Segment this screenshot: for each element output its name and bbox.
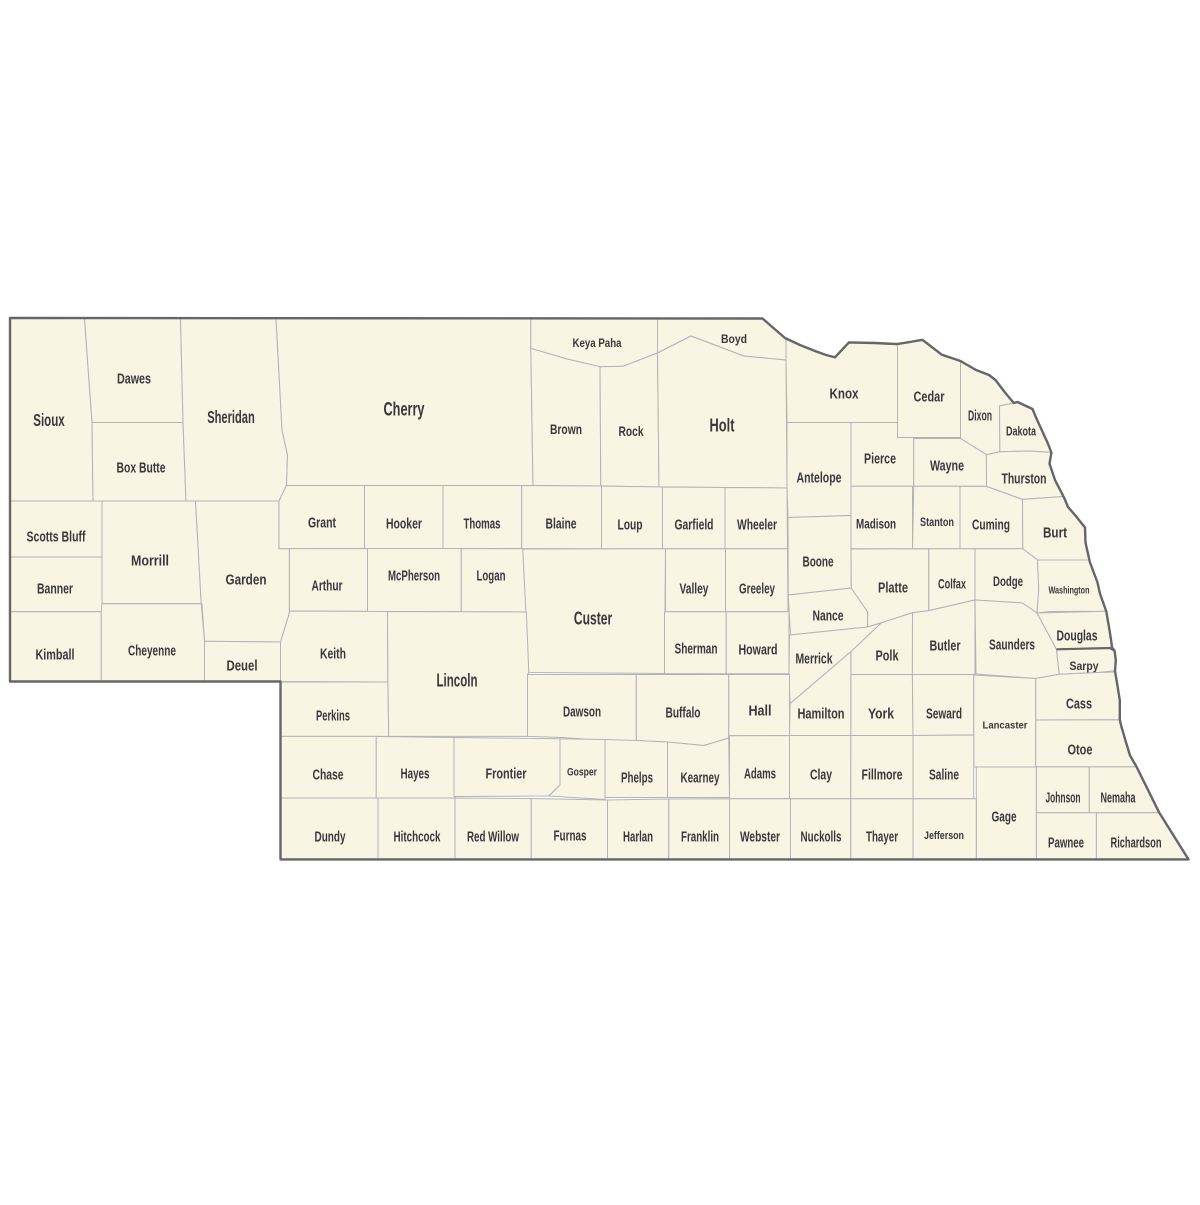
svg-text:Lancaster: Lancaster — [983, 720, 1028, 732]
svg-text:Polk: Polk — [876, 647, 899, 664]
svg-text:Arthur: Arthur — [312, 577, 343, 594]
svg-text:Buffalo: Buffalo — [666, 704, 701, 721]
svg-text:Saunders: Saunders — [989, 636, 1035, 653]
svg-text:Holt: Holt — [710, 415, 735, 435]
svg-text:Blaine: Blaine — [546, 515, 577, 532]
svg-text:Merrick: Merrick — [796, 650, 833, 667]
svg-text:Greeley: Greeley — [739, 580, 775, 597]
svg-text:Hamilton: Hamilton — [798, 705, 845, 722]
svg-text:Wayne: Wayne — [930, 457, 964, 474]
svg-text:Hooker: Hooker — [386, 515, 422, 532]
svg-text:Antelope: Antelope — [797, 469, 842, 486]
svg-text:Dodge: Dodge — [993, 573, 1023, 589]
svg-text:Howard: Howard — [739, 641, 778, 658]
svg-text:Butler: Butler — [930, 637, 961, 654]
svg-text:Perkins: Perkins — [316, 707, 350, 724]
svg-text:Frontier: Frontier — [486, 765, 527, 782]
svg-text:Kimball: Kimball — [36, 646, 75, 663]
svg-text:Seward: Seward — [926, 705, 962, 722]
svg-text:Sheridan: Sheridan — [207, 407, 255, 427]
svg-text:Pawnee: Pawnee — [1048, 834, 1084, 851]
svg-text:Logan: Logan — [477, 567, 506, 584]
svg-text:Douglas: Douglas — [1057, 627, 1098, 644]
svg-text:Rock: Rock — [619, 423, 644, 439]
svg-text:Saline: Saline — [929, 766, 959, 783]
svg-text:Otoe: Otoe — [1068, 741, 1093, 758]
svg-text:Gage: Gage — [992, 808, 1017, 825]
svg-text:Hall: Hall — [749, 702, 772, 719]
svg-text:Clay: Clay — [810, 766, 832, 783]
svg-text:Fillmore: Fillmore — [862, 766, 903, 783]
svg-text:Deuel: Deuel — [227, 657, 258, 674]
svg-text:Webster: Webster — [740, 828, 780, 845]
svg-text:Nuckolls: Nuckolls — [801, 828, 842, 845]
svg-text:Brown: Brown — [550, 421, 582, 437]
svg-text:Platte: Platte — [878, 579, 908, 596]
svg-text:Custer: Custer — [574, 608, 612, 628]
svg-text:Furnas: Furnas — [554, 827, 587, 844]
svg-text:Cuming: Cuming — [972, 516, 1010, 533]
svg-text:Nemaha: Nemaha — [1101, 789, 1136, 806]
svg-text:Phelps: Phelps — [621, 769, 653, 786]
svg-text:McPherson: McPherson — [388, 567, 440, 584]
svg-text:Keya Paha: Keya Paha — [573, 336, 622, 350]
svg-text:Red Willow: Red Willow — [467, 828, 519, 845]
svg-text:Cherry: Cherry — [384, 400, 425, 421]
svg-text:Johnson: Johnson — [1046, 789, 1081, 806]
svg-text:Nance: Nance — [813, 607, 844, 624]
svg-text:Pierce: Pierce — [864, 450, 896, 467]
svg-text:Richardson: Richardson — [1111, 834, 1162, 851]
svg-text:Chase: Chase — [313, 766, 344, 783]
svg-text:Dakota: Dakota — [1006, 424, 1036, 439]
svg-text:Cheyenne: Cheyenne — [128, 642, 176, 659]
svg-text:York: York — [868, 705, 894, 722]
svg-text:Banner: Banner — [37, 580, 73, 597]
svg-text:Morrill: Morrill — [131, 552, 169, 569]
svg-text:Dixon: Dixon — [968, 407, 992, 424]
svg-text:Franklin: Franklin — [681, 828, 719, 845]
svg-text:Kearney: Kearney — [681, 769, 720, 786]
svg-text:Garden: Garden — [226, 571, 267, 588]
svg-text:Thomas: Thomas — [464, 515, 501, 532]
svg-text:Valley: Valley — [680, 580, 709, 597]
svg-text:Dawson: Dawson — [563, 703, 601, 720]
svg-text:Knox: Knox — [830, 385, 859, 402]
svg-text:Box Butte: Box Butte — [117, 459, 166, 476]
svg-text:Lincoln: Lincoln — [437, 670, 478, 690]
svg-text:Garfield: Garfield — [675, 516, 714, 533]
svg-text:Boone: Boone — [803, 553, 834, 570]
svg-text:Gosper: Gosper — [567, 766, 597, 778]
svg-text:Grant: Grant — [308, 514, 336, 531]
svg-text:Burt: Burt — [1043, 524, 1067, 541]
svg-text:Washington: Washington — [1049, 586, 1090, 597]
svg-text:Sherman: Sherman — [675, 640, 718, 657]
svg-text:Jefferson: Jefferson — [924, 830, 964, 842]
svg-text:Cass: Cass — [1066, 695, 1092, 712]
svg-text:Boyd: Boyd — [721, 332, 747, 346]
svg-text:Thayer: Thayer — [866, 828, 898, 845]
svg-text:Sarpy: Sarpy — [1070, 659, 1099, 673]
svg-text:Hitchcock: Hitchcock — [394, 828, 441, 845]
svg-text:Dawes: Dawes — [117, 370, 151, 387]
svg-text:Hayes: Hayes — [401, 765, 430, 782]
svg-text:Scotts Bluff: Scotts Bluff — [27, 528, 87, 545]
svg-text:Loup: Loup — [618, 516, 643, 533]
svg-text:Keith: Keith — [320, 645, 346, 662]
svg-text:Stanton: Stanton — [920, 515, 954, 529]
svg-text:Madison: Madison — [856, 517, 896, 532]
svg-text:Dundy: Dundy — [315, 828, 346, 845]
svg-text:Sioux: Sioux — [33, 410, 65, 430]
svg-text:Adams: Adams — [744, 765, 776, 782]
svg-text:Wheeler: Wheeler — [737, 516, 777, 533]
svg-text:Harlan: Harlan — [623, 828, 653, 845]
svg-text:Colfax: Colfax — [938, 577, 966, 592]
svg-text:Thurston: Thurston — [1002, 470, 1047, 487]
svg-text:Cedar: Cedar — [914, 388, 945, 405]
